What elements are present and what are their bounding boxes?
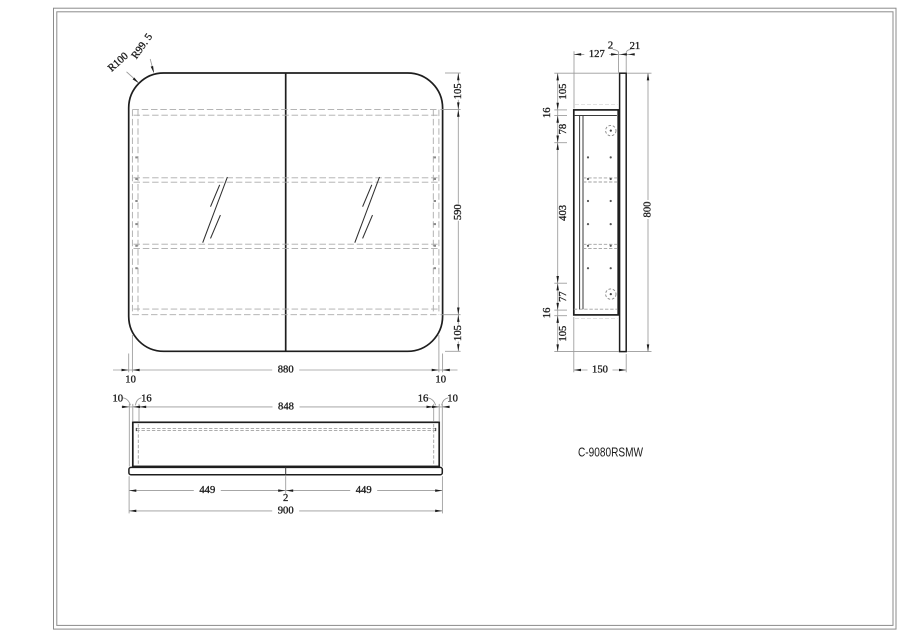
svg-text:16: 16: [542, 107, 553, 118]
svg-text:105: 105: [453, 325, 464, 341]
svg-text:2: 2: [608, 41, 613, 52]
svg-text:800: 800: [643, 202, 654, 218]
svg-text:150: 150: [592, 365, 608, 376]
svg-text:C-9080RSMW: C-9080RSMW: [578, 444, 644, 459]
svg-text:78: 78: [558, 124, 569, 135]
svg-text:R100: R100: [106, 51, 130, 75]
svg-text:449: 449: [356, 485, 372, 496]
svg-text:21: 21: [630, 41, 641, 52]
svg-text:10: 10: [447, 393, 458, 404]
svg-text:10: 10: [113, 393, 124, 404]
svg-text:848: 848: [278, 401, 294, 412]
svg-text:403: 403: [558, 205, 569, 221]
svg-text:449: 449: [199, 485, 215, 496]
svg-text:590: 590: [453, 204, 464, 220]
svg-text:127: 127: [589, 49, 605, 60]
svg-text:2: 2: [283, 493, 288, 504]
svg-text:880: 880: [278, 365, 294, 376]
svg-text:105: 105: [558, 326, 569, 342]
svg-text:10: 10: [435, 375, 446, 386]
svg-text:105: 105: [558, 84, 569, 100]
svg-text:105: 105: [453, 83, 464, 99]
svg-text:77: 77: [558, 291, 569, 302]
svg-text:10: 10: [125, 375, 136, 386]
svg-text:16: 16: [418, 393, 429, 404]
svg-text:16: 16: [542, 308, 553, 319]
svg-text:16: 16: [141, 393, 152, 404]
svg-text:R99. 5: R99. 5: [130, 32, 155, 61]
svg-text:900: 900: [278, 505, 294, 516]
